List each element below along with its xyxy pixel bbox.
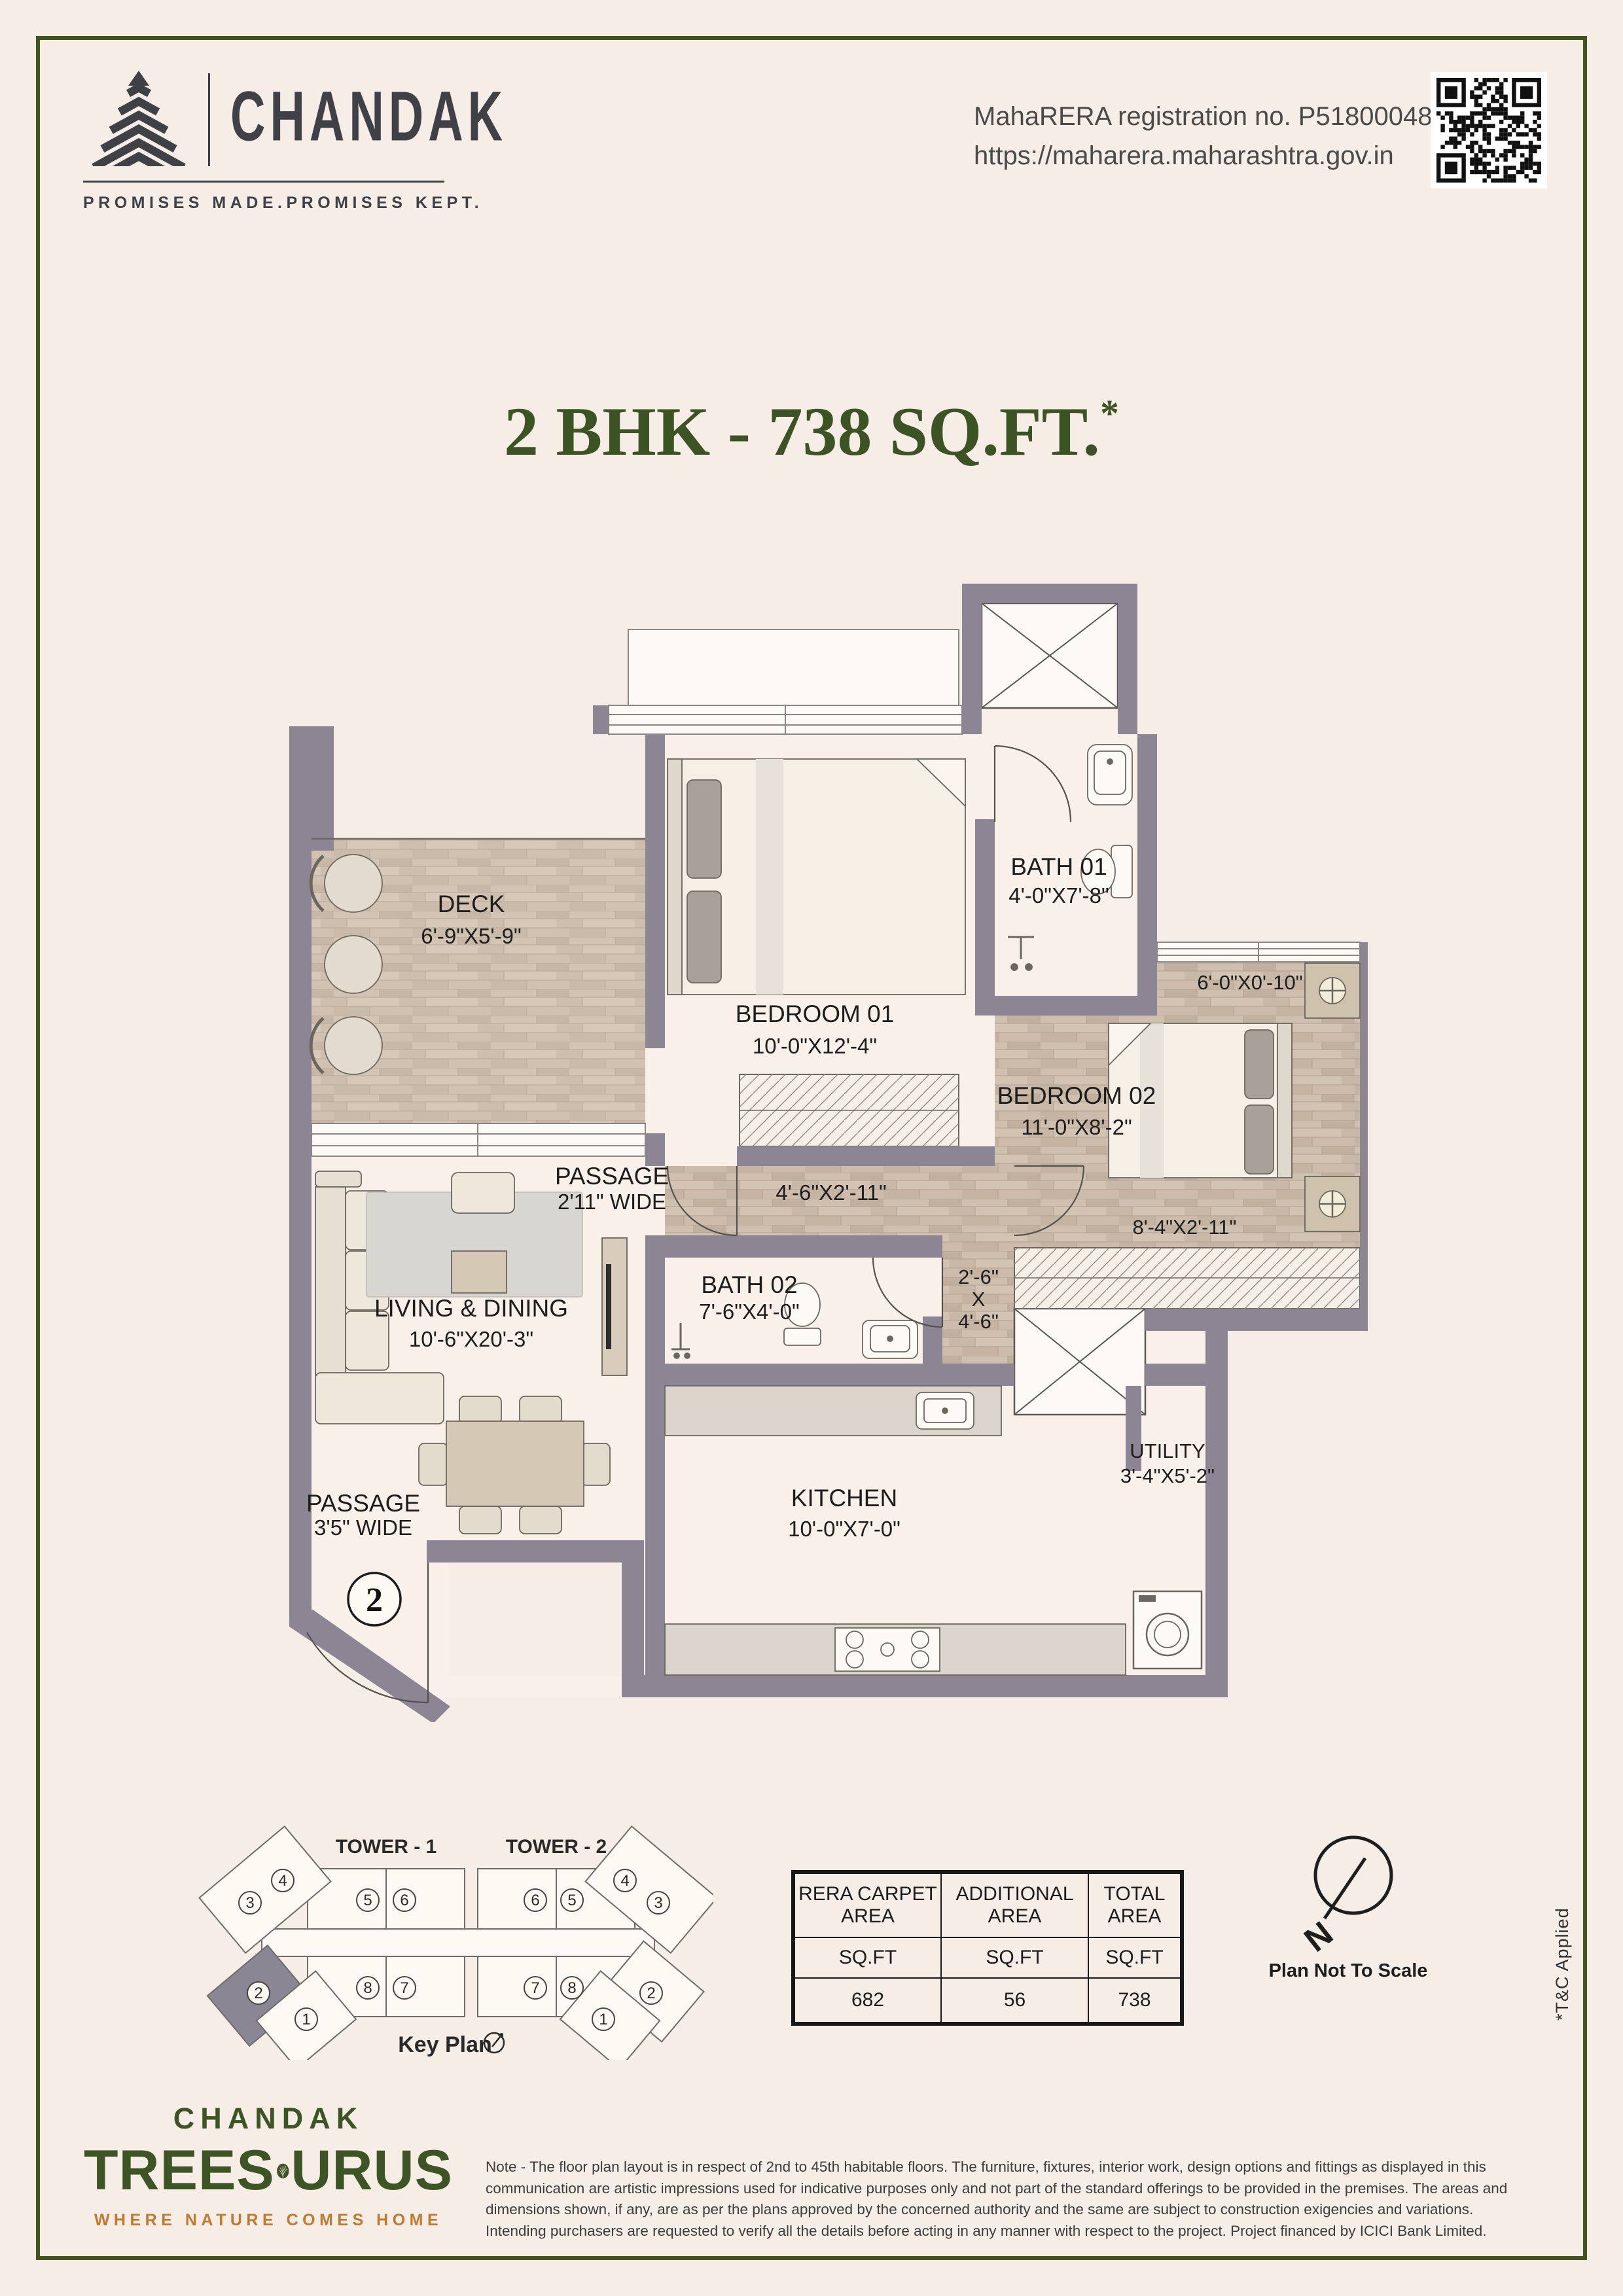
- label-bed02-deck-dim: 6'-0"X0'-10": [1197, 971, 1302, 994]
- window-bedroom01-north: [609, 705, 962, 734]
- label-foyer-w: 2'-6": [958, 1265, 999, 1288]
- table-value: 682: [795, 1979, 942, 2022]
- logo-divider: [208, 73, 210, 166]
- svg-text:8: 8: [567, 1979, 576, 1997]
- area-table: RERA CARPETAREA ADDITIONALAREA TOTALAREA…: [791, 1870, 1184, 2026]
- table-header: ADDITIONALAREA: [942, 1874, 1089, 1938]
- footer-logo-main: TREES URUS: [84, 2138, 453, 2203]
- unit-number-badge: 2: [348, 1573, 401, 1625]
- table-header: RERA CARPETAREA: [795, 1874, 942, 1938]
- svg-text:1: 1: [599, 2011, 607, 2028]
- svg-text:2: 2: [254, 1985, 262, 2002]
- label-deck: DECK: [438, 891, 505, 917]
- tree-icon: [276, 2142, 290, 2200]
- table-unit: SQ.FT: [942, 1938, 1089, 1979]
- logo-rule: [83, 181, 444, 183]
- qr-code: [1431, 72, 1547, 188]
- svg-text:6: 6: [400, 1892, 408, 1909]
- label-utility-dim: 3'-4"X5'-2": [1120, 1464, 1215, 1487]
- label-utility: UTILITY: [1130, 1439, 1205, 1462]
- svg-text:3: 3: [245, 1894, 254, 1912]
- brand-tagline: PROMISES MADE.PROMISES KEPT.: [83, 194, 483, 213]
- svg-text:5: 5: [363, 1892, 372, 1909]
- wardrobe-bedroom02: [1014, 1248, 1360, 1309]
- table-unit: SQ.FT: [1089, 1938, 1180, 1979]
- label-kitchen-dim: 10'-0"X7'-0": [788, 1517, 901, 1541]
- label-passage2-dim: 3'5" WIDE: [314, 1515, 412, 1540]
- lift-shaft: [982, 603, 1118, 708]
- label-bedroom01-dim: 10'-0"X12'-4": [753, 1034, 877, 1058]
- label-bedroom01: BEDROOM 01: [736, 1000, 895, 1027]
- label-passage1: PASSAGE: [555, 1163, 669, 1190]
- svg-text:2: 2: [366, 1581, 383, 1619]
- page-title: 2 BHK - 738 SQ.FT.*: [0, 391, 1623, 472]
- svg-text:4: 4: [278, 1872, 287, 1890]
- north-compass-icon: N: [1288, 1824, 1419, 1975]
- treesourus-logo: CHANDAK TREES URUS WHERE NATURE COMES HO…: [84, 2102, 453, 2230]
- svg-text:4: 4: [620, 1872, 629, 1890]
- tower1-label: TOWER - 1: [336, 1836, 437, 1858]
- rera-url: https://maharera.maharashtra.gov.in: [974, 136, 1476, 175]
- label-corridor-dim: 4'-6"X2'-11": [776, 1180, 886, 1205]
- key-plan: 3 4 5 6 8 7 6 5 7 8 2 1 4 3 1 2 TOWER - …: [196, 1824, 713, 2060]
- label-living: LIVING & DINING: [374, 1295, 568, 1322]
- title-asterisk: *: [1100, 392, 1119, 434]
- keyplan-label: Key Plan: [398, 2032, 492, 2057]
- coffee-table-icon: [452, 1251, 507, 1293]
- rera-registration: MahaRERA registration no. P51800048658 h…: [974, 97, 1476, 175]
- washing-machine-icon: [1133, 1591, 1202, 1669]
- north-letter: N: [1297, 1915, 1340, 1960]
- disclaimer-note: Note - The floor plan layout is in respe…: [486, 2157, 1538, 2242]
- tv-unit-icon: [602, 1238, 627, 1375]
- svg-text:7: 7: [531, 1979, 539, 1997]
- label-bedroom02: BEDROOM 02: [997, 1082, 1156, 1109]
- label-bath01-dim: 4'-0"X7'-8": [1008, 883, 1109, 908]
- svg-text:7: 7: [400, 1979, 408, 1997]
- label-bath02: BATH 02: [701, 1271, 797, 1298]
- label-bedroom02-dim: 11'-0"X8'-2": [1021, 1115, 1132, 1139]
- footer-brand: CHANDAK: [84, 2102, 453, 2136]
- chandak-pyramid-icon: [83, 68, 194, 168]
- svg-text:2: 2: [647, 1985, 655, 2002]
- label-foyer-x: X: [972, 1288, 986, 1311]
- brochure-page: CHANDAK PROMISES MADE.PROMISES KEPT. Mah…: [0, 0, 1623, 2296]
- plan-scale-note: Plan Not To Scale: [1253, 1960, 1443, 1982]
- label-deck-dim: 6'-9"X5'-9": [421, 924, 521, 948]
- label-foyer-h: 4'-6": [958, 1310, 999, 1333]
- ac-ledge-top: [628, 629, 959, 705]
- label-bath02-dim: 7'-6"X4'-0": [699, 1299, 799, 1324]
- table-value: 738: [1089, 1979, 1180, 2022]
- label-bath01: BATH 01: [1010, 853, 1107, 880]
- tower2-label: TOWER - 2: [506, 1836, 607, 1858]
- svg-text:3: 3: [654, 1894, 662, 1912]
- rera-number: MahaRERA registration no. P51800048658: [974, 97, 1476, 136]
- bed-bedroom01-icon: [668, 759, 965, 995]
- table-header: TOTALAREA: [1089, 1874, 1180, 1938]
- svg-text:1: 1: [302, 2011, 310, 2028]
- label-passage2: PASSAGE: [306, 1490, 420, 1517]
- table-unit: SQ.FT: [795, 1938, 942, 1979]
- svg-text:6: 6: [531, 1892, 539, 1909]
- window-deck-south: [312, 1123, 645, 1156]
- window-bedroom02-north: [1157, 942, 1360, 962]
- label-kitchen: KITCHEN: [791, 1485, 897, 1511]
- svg-text:5: 5: [567, 1892, 576, 1909]
- armchair-icon: [452, 1173, 514, 1213]
- hob-icon: [835, 1628, 940, 1671]
- brand-name: CHANDAK: [230, 76, 507, 156]
- tnc-vertical-note: *T&C Applied: [1552, 1863, 1573, 2021]
- label-bed02-wardrobe-dim: 8'-4"X2'-11": [1132, 1216, 1236, 1239]
- svg-text:8: 8: [363, 1979, 372, 1997]
- label-passage1-dim: 2'11" WIDE: [558, 1190, 666, 1214]
- table-value: 56: [942, 1979, 1089, 2022]
- label-living-dim: 10'-6"X20'-3": [409, 1327, 533, 1351]
- floor-plan: 2 DECK 6'-9"X5'-9" BEDROOM 01 10'-0"X12'…: [255, 571, 1368, 1722]
- footer-tagline: WHERE NATURE COMES HOME: [84, 2211, 453, 2230]
- wardrobe-bedroom01: [740, 1074, 959, 1146]
